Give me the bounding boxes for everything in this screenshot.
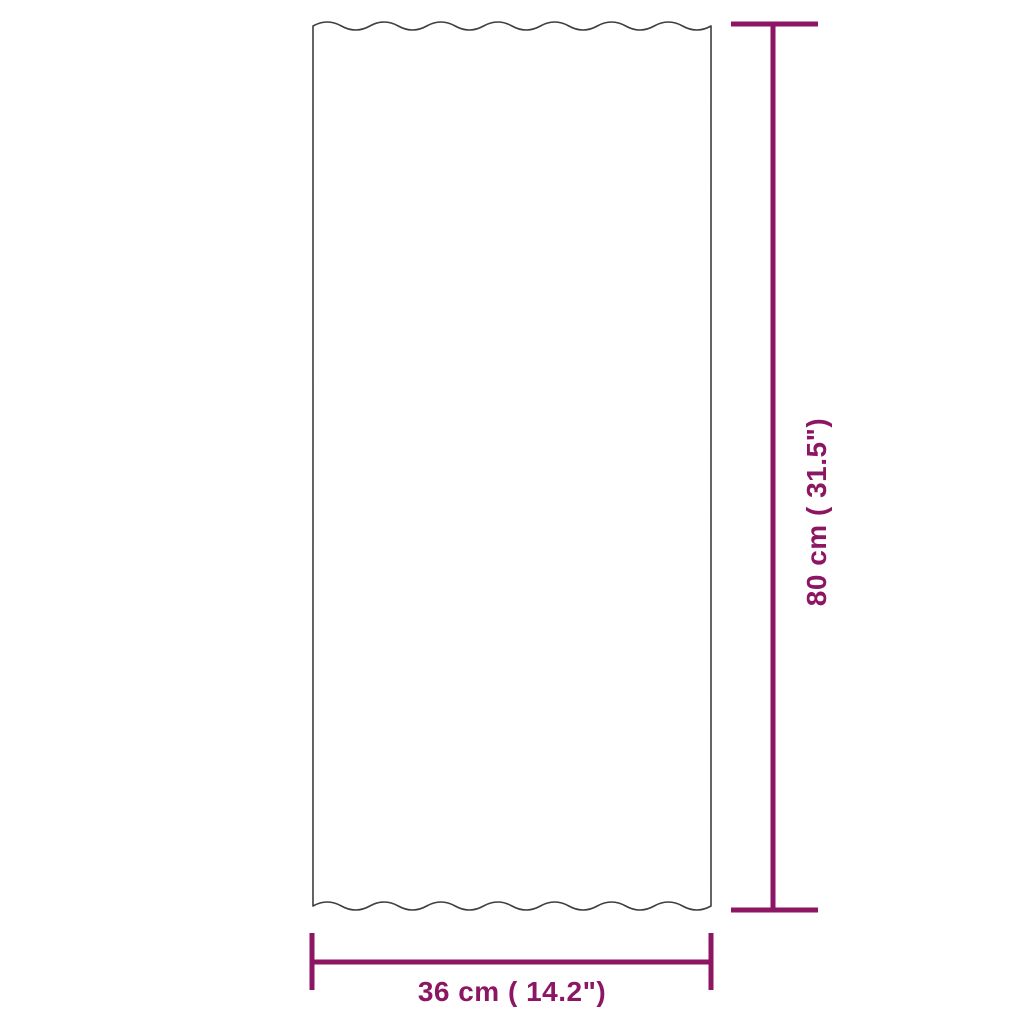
product-dimension-diagram: 80 cm ( 31.5") 36 cm ( 14.2")	[0, 0, 1024, 1024]
panel-outline	[313, 22, 711, 910]
vertical-dimension-label: 80 cm ( 31.5")	[801, 418, 833, 606]
diagram-graphics	[0, 0, 1024, 1024]
horizontal-dimension-label: 36 cm ( 14.2")	[418, 976, 606, 1008]
